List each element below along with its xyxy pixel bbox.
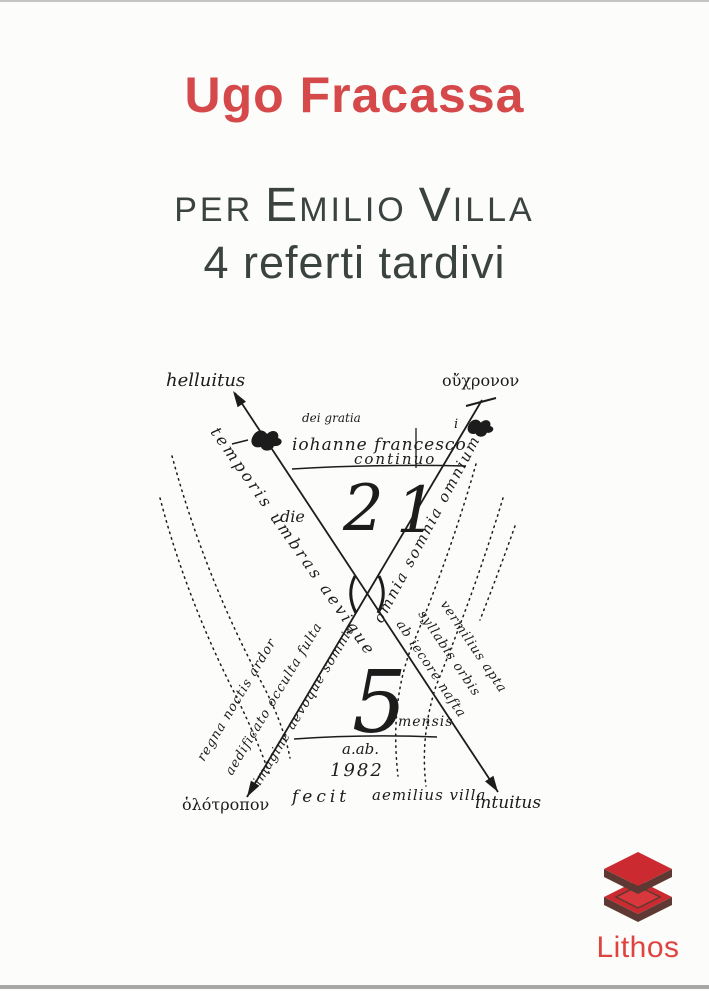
date-aab: a.ab. (342, 740, 379, 758)
title-block: per Emilio Villa 4 referti tardivi (0, 182, 709, 285)
date-1982: 1982 (330, 760, 384, 781)
dei-gratia-text: dei gratia (302, 411, 361, 425)
arrowhead-top-left (233, 391, 246, 407)
big-number-2: 2 (342, 472, 384, 546)
big-number-5: 5 (352, 653, 407, 753)
author-name: Ugo Fracassa (0, 66, 709, 124)
corner-word-helluitus: helluitus (166, 370, 245, 391)
fecit-caption: fecit (290, 787, 350, 807)
logo-top-slab (604, 852, 672, 894)
scan-edge-bottom (0, 985, 709, 989)
book-cover: Ugo Fracassa per Emilio Villa 4 referti … (0, 0, 709, 991)
superscript-i: i (454, 417, 458, 432)
scan-edge-top (0, 0, 709, 2)
t-bar-top-right (466, 398, 496, 406)
aemilius-villa-caption: aemilius villa (372, 786, 486, 804)
title-prefix: per (174, 191, 253, 229)
title-name1-rest: milio (299, 191, 407, 229)
publisher-name: Lithos (585, 933, 691, 963)
villa-handdrawn-figure: helluitus οὔχρονον ὁλότροπον intuitus de… (158, 356, 556, 834)
book-subtitle: 4 referti tardivi (0, 240, 709, 285)
title-name1-initial: E (265, 179, 299, 232)
publisher-block: Lithos (585, 852, 691, 963)
center-top-inscription: dei gratia iohanne francesco i continuo … (280, 411, 467, 548)
corner-word-ouchronon: οὔχρονον (442, 371, 519, 390)
title-name2-initial: V (419, 179, 453, 232)
arrowhead-bottom-right (485, 776, 498, 792)
corner-word-holotropon: ὁλότροπον (182, 795, 269, 814)
book-title: per Emilio Villa (0, 182, 709, 230)
stacked-slabs-icon (598, 852, 678, 926)
mensis-label: mensis (398, 714, 453, 730)
title-name2-rest: illa (453, 191, 535, 229)
